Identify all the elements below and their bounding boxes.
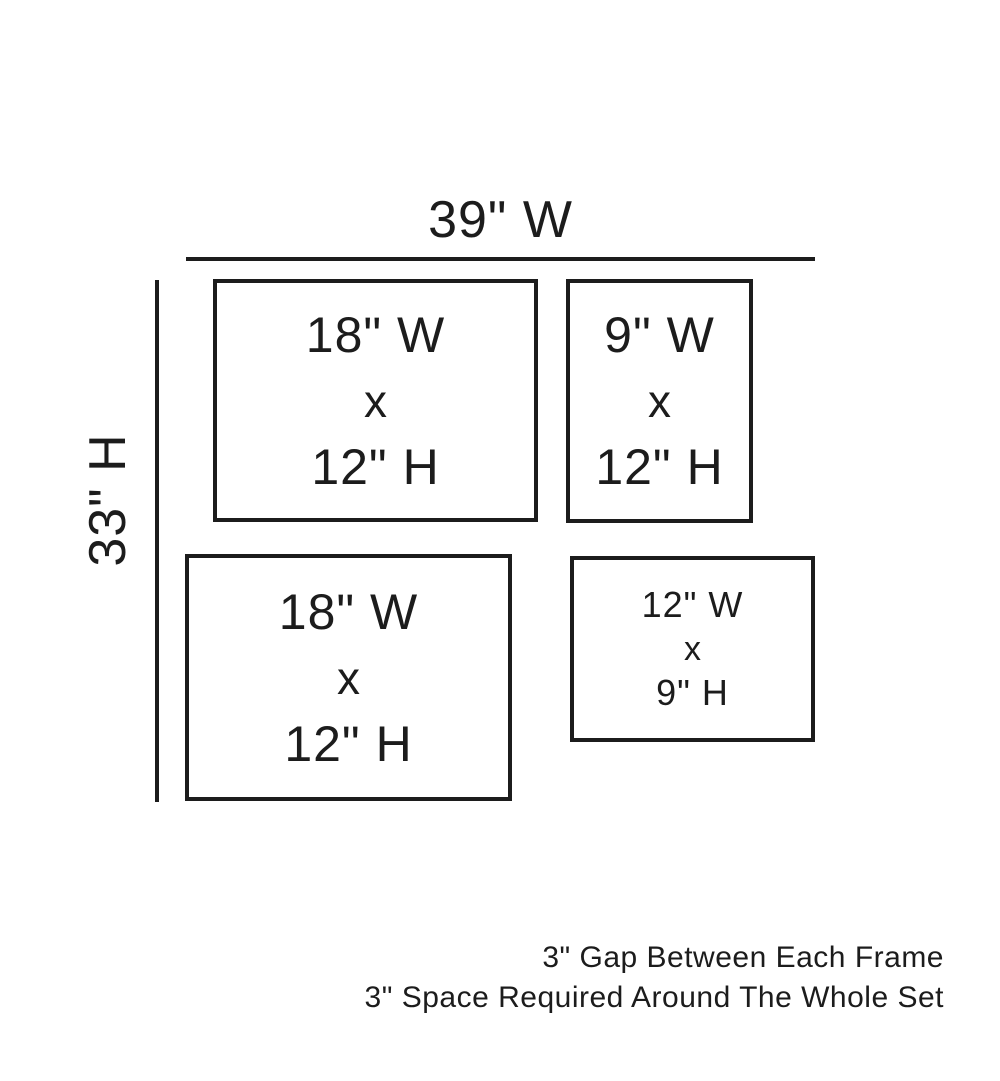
frame-top-right: 9" W x 12" H — [566, 279, 753, 523]
frame-width-label: 18" W — [306, 308, 445, 362]
spacing-notes: 3" Gap Between Each Frame 3" Space Requi… — [365, 938, 944, 1018]
total-width-dimension-line — [186, 257, 815, 261]
frame-height-label: 9" H — [656, 673, 729, 713]
frame-top-left: 18" W x 12" H — [213, 279, 538, 522]
frame-width-label: 18" W — [279, 585, 418, 639]
total-height-label: 33" H — [80, 433, 136, 566]
frame-height-label: 12" H — [595, 440, 723, 494]
frame-height-label: 12" H — [284, 717, 412, 771]
frame-width-label: 9" W — [604, 308, 715, 362]
total-height-dimension-line — [155, 280, 159, 802]
frame-height-label: 12" H — [311, 440, 439, 494]
multiply-sign: x — [337, 653, 360, 703]
surround-space-note: 3" Space Required Around The Whole Set — [365, 978, 944, 1018]
frame-bottom-right: 12" W x 9" H — [570, 556, 815, 742]
multiply-sign: x — [364, 376, 387, 426]
frame-width-label: 12" W — [642, 585, 744, 625]
gap-note: 3" Gap Between Each Frame — [365, 938, 944, 978]
multiply-sign: x — [684, 631, 701, 667]
multiply-sign: x — [648, 376, 671, 426]
total-width-label: 39" W — [186, 192, 815, 248]
frame-bottom-left: 18" W x 12" H — [185, 554, 512, 801]
frame-layout-diagram: 39" W 33" H 18" W x 12" H 9" W x 12" H 1… — [0, 0, 1000, 1081]
